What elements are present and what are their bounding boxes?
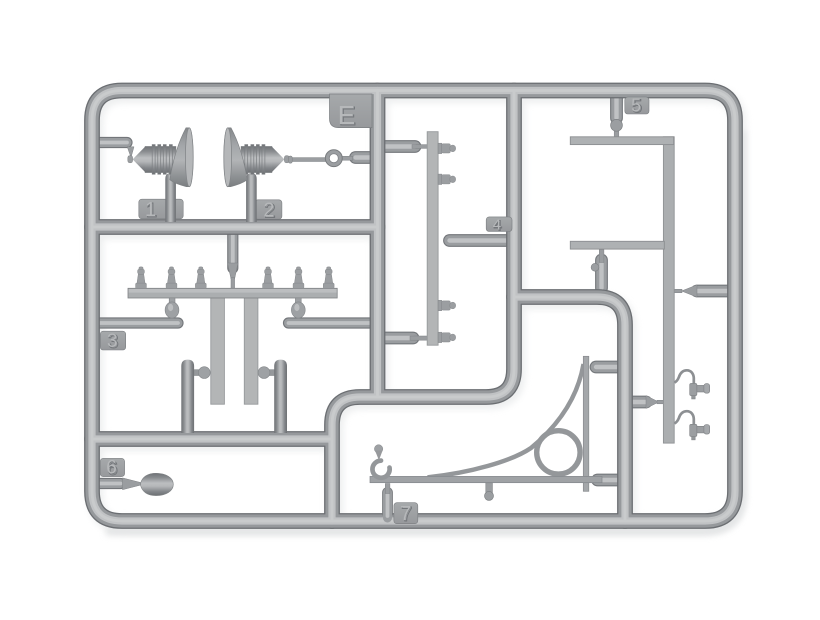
svg-text:6: 6	[106, 458, 117, 479]
svg-text:5: 5	[631, 95, 641, 115]
svg-text:4: 4	[493, 216, 501, 233]
svg-text:E: E	[338, 100, 355, 130]
svg-text:2: 2	[263, 199, 274, 221]
svg-text:1: 1	[145, 199, 156, 221]
svg-text:3: 3	[107, 331, 118, 352]
svg-text:7: 7	[400, 503, 411, 525]
